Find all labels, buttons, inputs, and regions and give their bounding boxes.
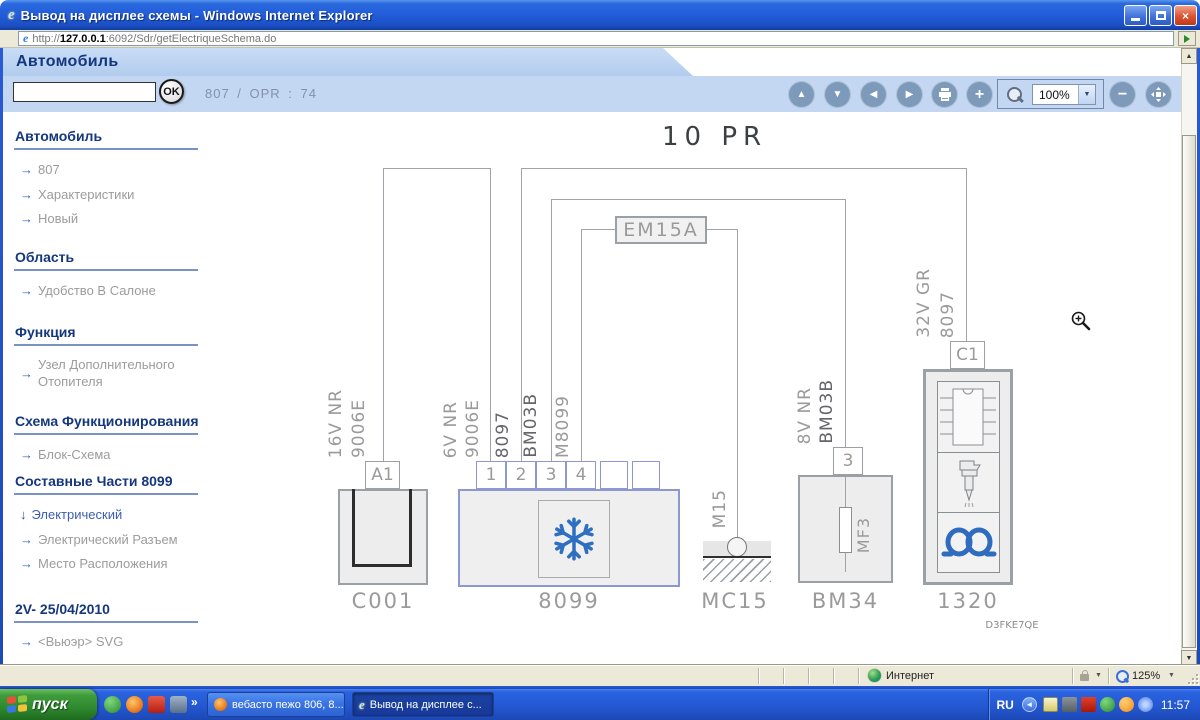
zoom-control-group: 100% ▼ [997, 79, 1104, 109]
divider [858, 668, 859, 684]
wire [383, 168, 491, 169]
minus-icon: − [1118, 86, 1127, 104]
wire-label: 9006E [351, 399, 368, 458]
quick-launch-icon[interactable] [170, 696, 187, 713]
component-label-bm34: BM34 [798, 589, 893, 613]
close-icon: × [1182, 9, 1189, 23]
scroll-up-icon: ▲ [1186, 53, 1193, 60]
wire [966, 168, 967, 341]
wire-label: BM03B [523, 393, 540, 458]
tray-collapse-chevron[interactable]: ◄ [1022, 697, 1037, 712]
wire [581, 229, 582, 461]
wire-label: BM03B [819, 379, 836, 444]
sidebar-item-electrical[interactable]: ↓Электрический [20, 507, 122, 522]
app-title: Автомобиль [3, 53, 118, 71]
sidebar-item-cabin-comfort[interactable]: →Удобство В Салоне [20, 283, 156, 298]
tray-icon-utorrent[interactable] [1100, 697, 1115, 712]
divider [1072, 668, 1073, 684]
snowflake-icon [549, 514, 599, 564]
pan-left-button[interactable]: ◀ [860, 81, 887, 108]
terminal-3: 3 [536, 461, 566, 489]
app-toolbar-band: OK 807 / OPR : 74 ▲ ▼ ◀ ▶ + 100% ▼ − [3, 76, 1181, 112]
tray-icon-keyboard[interactable] [1043, 697, 1058, 712]
go-button[interactable] [1178, 31, 1196, 46]
ok-label: OK [163, 86, 180, 98]
resize-grip[interactable] [1186, 672, 1198, 684]
component-1320 [923, 369, 1013, 585]
wire [707, 229, 738, 230]
component-label-8099: 8099 [458, 589, 680, 613]
divider [808, 668, 809, 684]
magnifier-handle [1017, 96, 1024, 103]
ground-hatch [703, 559, 771, 582]
arrow-down-icon: ▼ [833, 89, 843, 100]
screen: e Вывод на дисплее схемы - Windows Inter… [0, 0, 1200, 720]
coil-frame [937, 512, 1000, 573]
schema-code: D3FKE7QE [962, 620, 1062, 631]
clock: 11:57 [1161, 698, 1190, 712]
task-button-ie[interactable]: e Вывод на дисплее с... [352, 692, 494, 717]
chip-icon [938, 382, 999, 452]
page-icon: e [23, 31, 28, 46]
window-titlebar: e Вывод на дисплее схемы - Windows Inter… [0, 0, 1200, 30]
quick-launch-overflow-chevron[interactable]: » [191, 695, 198, 709]
sidebar-item-807[interactable]: →807 [20, 162, 60, 177]
chevron-down-icon[interactable]: ▼ [1168, 672, 1175, 679]
arrow-right-icon: → [20, 187, 33, 202]
divider [758, 668, 759, 684]
fit-screen-button[interactable] [1145, 81, 1172, 108]
task-button-label: Вывод на дисплее с... [370, 699, 482, 711]
divider [833, 668, 834, 684]
sidebar-item-electrical-connector[interactable]: →Электрический Разъем [20, 532, 178, 547]
scroll-down-icon: ▼ [1186, 655, 1193, 662]
injector-icon [950, 457, 988, 509]
ground-eyelet [727, 537, 747, 557]
wire-label: 32V GR [916, 268, 933, 338]
diagram-title: 10 PR [662, 122, 767, 152]
divider [783, 668, 784, 684]
divider [14, 269, 198, 271]
maximize-button[interactable] [1149, 5, 1172, 26]
sidebar-heading-parts-8099: Составные Части 8099 [15, 473, 173, 489]
chevron-left-icon: ◄ [1025, 700, 1033, 709]
wire [581, 229, 615, 230]
protected-mode-icon [1080, 674, 1089, 681]
sidebar-heading-area: Область [15, 249, 74, 265]
terminal-3-bm34: 3 [833, 447, 863, 475]
go-icon [1184, 35, 1190, 43]
component-c001 [338, 489, 428, 585]
security-zone-label: Интернет [886, 670, 934, 682]
arrow-left-icon: ◀ [870, 89, 878, 100]
wire [737, 229, 738, 537]
close-button[interactable]: × [1174, 5, 1197, 26]
url-path: :6092/Sdr/getElectriqueSchema.do [106, 33, 277, 45]
sidebar-heading-vehicle: Автомобиль [15, 128, 102, 144]
divider [1108, 668, 1109, 684]
wire [490, 168, 491, 461]
divider [14, 344, 198, 346]
wire-label: 9006E [465, 399, 482, 458]
zoom-level-select[interactable]: 100% ▼ [1032, 84, 1096, 105]
arrow-up-icon: ▲ [797, 89, 807, 100]
arrow-right-icon: → [20, 532, 33, 547]
wire-label: 16V NR [328, 389, 345, 458]
fuse-label: MF3 [856, 517, 872, 553]
pan-down-button[interactable]: ▼ [824, 81, 851, 108]
relay-em15a: EM15A [615, 216, 707, 244]
arrow-right-icon: → [20, 634, 33, 649]
start-label: пуск [32, 696, 68, 714]
divider [14, 148, 198, 150]
address-bar: e http://127.0.0.1:6092/Sdr/getElectriqu… [0, 30, 1200, 48]
glow-coil-icon [941, 524, 997, 562]
start-button[interactable]: пуск [0, 689, 97, 720]
chevron-down-icon[interactable]: ▼ [1095, 672, 1102, 679]
sidebar-heading-function: Функция [15, 324, 76, 340]
tray-icon-app[interactable] [1062, 697, 1077, 712]
arrow-right-icon: → [20, 366, 33, 381]
pan-up-button[interactable]: ▲ [788, 81, 815, 108]
ground-line [703, 556, 771, 558]
zoom-in-button[interactable]: + [966, 81, 993, 108]
search-input[interactable] [13, 82, 156, 102]
wire-label: 6V NR [443, 401, 460, 458]
wire [383, 168, 384, 461]
terminal-c1: C1 [950, 341, 985, 369]
wire-label: 8V NR [797, 387, 814, 444]
arrow-right-icon: → [20, 447, 33, 462]
print-button[interactable] [931, 81, 958, 108]
wire-label: 8097 [940, 291, 957, 338]
url-host: 127.0.0.1 [60, 33, 106, 45]
quick-launch-icon[interactable] [148, 696, 165, 713]
sidebar-item-block-schema[interactable]: →Блок-Схема [20, 447, 111, 462]
sidebar-item-location[interactable]: →Место Расположения [20, 556, 168, 571]
pan-right-button[interactable]: ▶ [896, 81, 923, 108]
wire-label: M8099 [555, 395, 572, 458]
zoom-level-value: 100% [1033, 88, 1078, 102]
maximize-icon [1156, 11, 1166, 20]
sidebar-item-characteristics[interactable]: →Характеристики [20, 187, 134, 202]
component-8099 [458, 489, 680, 587]
task-button-label: вебасто пежо 806, 8... [232, 699, 344, 711]
wire [551, 199, 552, 461]
sidebar-item-new[interactable]: →Новый [20, 211, 78, 226]
window-title: Вывод на дисплее схемы - Windows Interne… [21, 8, 373, 23]
component-bm34 [798, 475, 893, 583]
injector-frame [937, 452, 1000, 513]
page-zoom-value[interactable]: 125% [1132, 670, 1160, 682]
terminal-empty [600, 461, 628, 489]
url-protocol: http:// [32, 33, 60, 45]
zoom-dropdown-button[interactable]: ▼ [1078, 85, 1095, 104]
magnifier-cursor [1070, 310, 1092, 332]
plus-icon: + [975, 86, 984, 104]
component-label-mc15: MC15 [693, 589, 777, 613]
taskbar: пуск » вебасто пежо 806, 8... e Вывод на… [0, 689, 1200, 720]
fuse-symbol [839, 507, 852, 553]
terminal-2: 2 [506, 461, 536, 489]
arrow-down-icon: ↓ [20, 507, 27, 522]
windows-logo-icon [7, 695, 27, 714]
sidebar-item-svg-viewer[interactable]: →<Вьюэр> SVG [20, 634, 123, 649]
wire [845, 199, 846, 447]
sidebar-heading-version: 2V- 25/04/2010 [15, 601, 110, 617]
tray-icon-updates[interactable] [1138, 697, 1153, 712]
arrow-right-icon: → [20, 211, 33, 226]
divider [14, 493, 198, 495]
scroll-up-button[interactable]: ▲ [1181, 48, 1197, 64]
language-indicator[interactable]: RU [997, 698, 1014, 712]
ok-button[interactable]: OK [159, 79, 184, 104]
arrow-right-icon: → [20, 283, 33, 298]
tray-icon-agent[interactable] [1119, 697, 1134, 712]
wire-label: 8097 [495, 411, 512, 458]
task-button-firefox[interactable]: вебасто пежо 806, 8... [207, 692, 345, 717]
system-tray: RU ◄ 11:57 [988, 689, 1200, 720]
wire [521, 168, 967, 169]
sidebar-heading-schematic: Схема Функционирования [15, 413, 199, 429]
arrow-right-icon: → [20, 162, 33, 177]
component-label-1320: 1320 [923, 589, 1013, 613]
divider [14, 433, 198, 435]
component-label-c001: C001 [338, 589, 428, 613]
status-bar: Интернет ▼ 125% ▼ [0, 664, 1200, 686]
minimize-icon [1131, 18, 1140, 21]
window-border-left [0, 48, 3, 689]
firefox-icon [214, 698, 227, 711]
terminal-a1: A1 [365, 461, 400, 489]
arrow-right-icon: ▶ [906, 89, 914, 100]
divider [14, 621, 198, 623]
relay-label: EM15A [623, 219, 699, 241]
chip-frame [937, 381, 1000, 453]
ie-icon: e [8, 7, 15, 24]
wire-label: M15 [712, 489, 729, 528]
internet-zone-icon [868, 669, 881, 682]
terminal-4: 4 [566, 461, 596, 489]
zoom-out-button[interactable]: − [1109, 81, 1136, 108]
url-input[interactable]: e http://127.0.0.1:6092/Sdr/getElectriqu… [18, 31, 1174, 46]
snowflake-frame [538, 500, 610, 578]
ie-icon: e [359, 697, 365, 713]
chevron-down-icon: ▼ [1084, 91, 1091, 98]
connector-shell [352, 489, 412, 567]
utorrent-icon[interactable] [104, 696, 121, 713]
wire [551, 199, 846, 200]
vehicle-ref: 807 / OPR : 74 [205, 86, 317, 101]
printer-icon [938, 88, 952, 101]
sidebar-item-heater-unit[interactable]: →Узел Дополнительного Отопителя [20, 357, 192, 391]
tray-icon-acrobat[interactable] [1081, 697, 1096, 712]
terminal-1: 1 [476, 461, 506, 489]
scrollbar-thumb[interactable] [1182, 135, 1196, 648]
app-header-tab: Автомобиль [3, 48, 693, 76]
fit-icon [1151, 87, 1166, 102]
terminal-empty [632, 461, 660, 489]
firefox-icon[interactable] [126, 696, 143, 713]
minimize-button[interactable] [1124, 5, 1147, 26]
arrow-right-icon: → [20, 556, 33, 571]
